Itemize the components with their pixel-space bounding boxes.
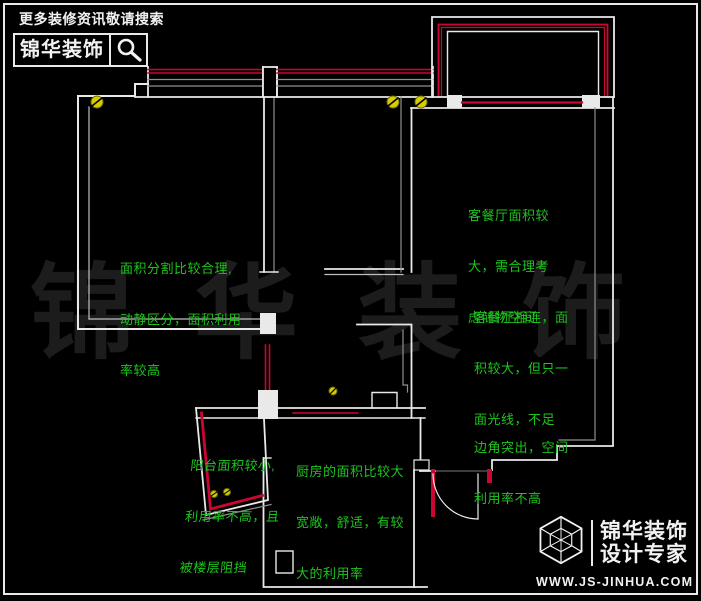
bedroom-middle-walls [325,97,412,275]
footer-brand-block: 锦华装饰 设计专家 WWW.JS-JINHUA.COM [536,514,692,589]
annotation-line: 被楼层阻挡 [179,559,275,576]
annotation-line: 厨房的面积比较大 [296,463,404,480]
annotation-balcony: 阳台面积较小, 利用率不高，且 被楼层阻挡 [177,423,289,593]
brand-logo-box: 锦华装饰 [13,33,148,67]
wall-block [260,313,276,334]
search-icon [111,36,146,64]
annotation-kitchen: 厨房的面积比较大 宽敞，舒适，有较 大的利用率 [296,429,404,599]
annotation-bedroom-main: 面积分割比较合理, 动静区分，面积利用 率较高 [120,226,242,396]
brand-name: 锦华装饰 [15,35,111,65]
kitchen-fixture [276,551,293,573]
annotation-line: 客餐厅相连，面 [474,309,569,326]
ceiling-light-icon [415,96,427,108]
annotation-line: 大的利用率 [296,565,404,582]
footer-divider [591,520,593,566]
header-brand-block: 更多装修资讯敬请搜索 锦华装饰 [13,9,164,67]
annotation-line: 阳台面积较小, [190,457,286,474]
annotation-line: 率较高 [120,362,242,379]
footer-brand-slogan: 设计专家 [600,543,688,566]
window-divider-pier [263,67,277,97]
annotation-line: 面积分割比较合理, [120,260,242,277]
page-root: { "header": { "tagline": "更多装修资讯敬请搜索", "… [0,0,701,601]
living-room-top-wall [411,95,614,108]
door-swing-arc [433,474,478,519]
annotation-line: 利用率不高，且 [184,508,280,525]
bay-window [432,17,614,97]
annotation-line: 边角突出，空间 [474,439,569,456]
annotation-line: 动静区分，面积利用 [120,311,242,328]
header-tagline: 更多装修资讯敬请搜索 [19,9,164,29]
footer-website: WWW.JS-JINHUA.COM [536,575,692,589]
ceiling-light-icon [329,387,337,395]
ceiling-light-icon [387,96,399,108]
annotation-line: 利用率不高 [474,490,569,507]
window-band-left [135,67,263,97]
wall-block [414,460,429,470]
cube-logo-icon [536,514,586,571]
ceiling-light-icon [91,96,103,108]
annotation-line: 积较大，但只一 [474,360,569,377]
annotation-line: 大，需合理考 [468,258,549,275]
footer-brand-name: 锦华装饰 [600,520,688,543]
niche [372,393,397,409]
annotation-line: 客餐厅面积较 [468,207,549,224]
annotation-corner: 边角突出，空间 利用率不高 [474,405,569,524]
window-band-middle [277,67,433,97]
bathroom-walls [357,325,412,419]
annotation-line: 宽敞，舒适，有较 [296,514,404,531]
